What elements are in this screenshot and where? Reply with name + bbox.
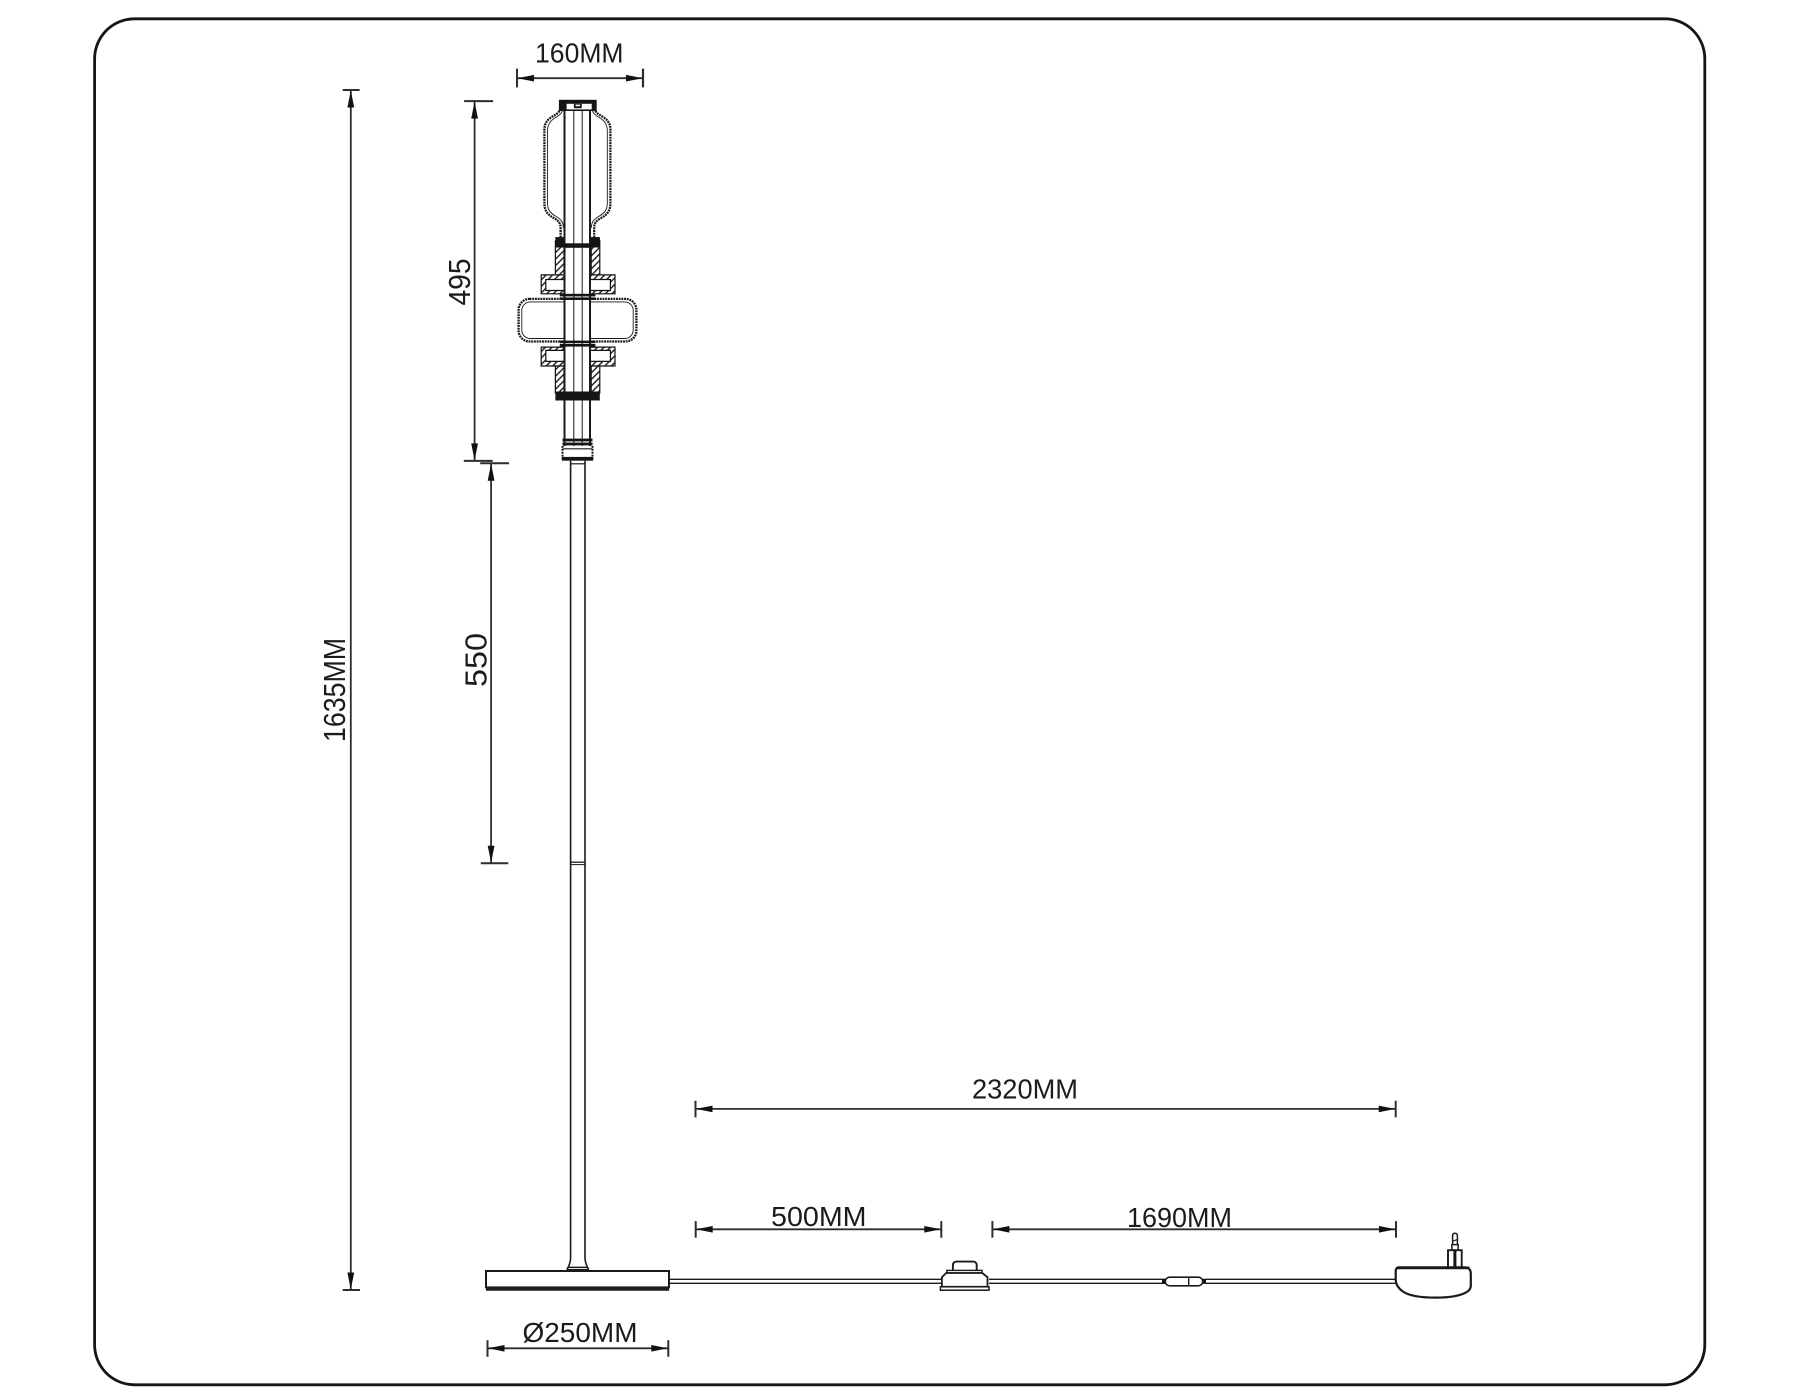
- svg-text:495: 495: [442, 259, 477, 306]
- svg-text:160MM: 160MM: [535, 38, 624, 69]
- svg-text:1690MM: 1690MM: [1127, 1202, 1232, 1233]
- svg-text:550: 550: [459, 633, 494, 687]
- svg-text:Ø250MM: Ø250MM: [523, 1317, 638, 1348]
- svg-text:2320MM: 2320MM: [972, 1074, 1078, 1105]
- svg-text:500MM: 500MM: [771, 1201, 867, 1232]
- svg-text:1635MM: 1635MM: [317, 638, 352, 742]
